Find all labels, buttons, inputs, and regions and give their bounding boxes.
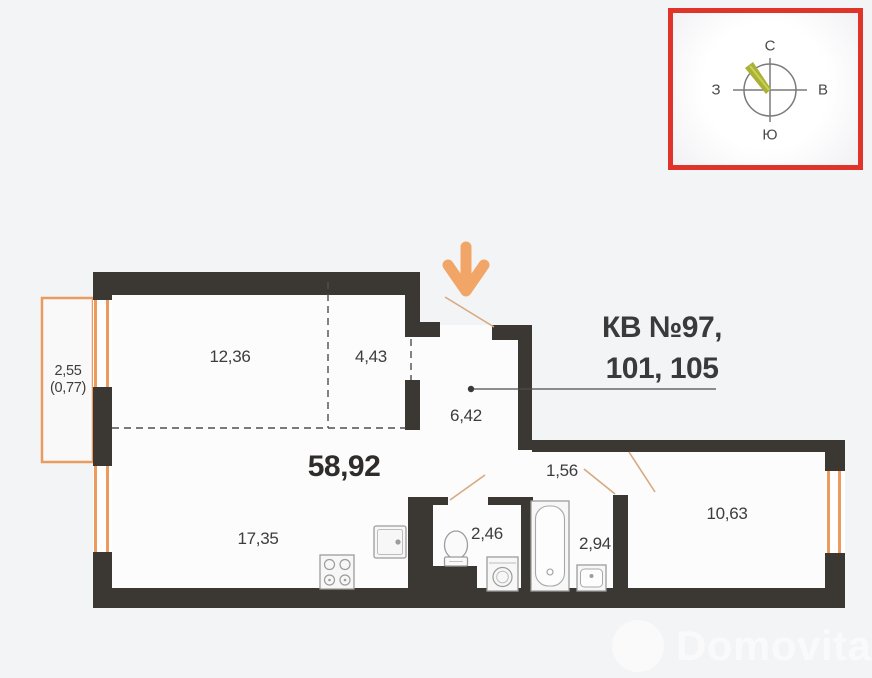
bathtub-icon xyxy=(531,501,569,591)
compass-east-label: В xyxy=(818,82,828,99)
washbasin-icon xyxy=(577,565,606,591)
area-label-bathroom: 2,94 xyxy=(579,534,611,554)
compass-rose: С Ю З В xyxy=(668,8,863,170)
area-label-bedroom: 10,63 xyxy=(706,504,747,524)
watermark-text: Domovita xyxy=(676,622,871,670)
apartment-title-line2: 101, 105 xyxy=(602,348,722,389)
balcony-coef-value: (0,77) xyxy=(50,380,86,397)
area-label-balcony: 2,55 (0,77) xyxy=(50,363,86,397)
window-left-lower xyxy=(93,466,112,552)
area-label-corridor: 1,56 xyxy=(546,461,578,481)
entrance-door-swing xyxy=(445,297,494,327)
watermark-logo-circle xyxy=(612,620,664,672)
total-area-label: 58,92 xyxy=(308,450,381,484)
apartment-title-line1: КВ №97, xyxy=(602,307,722,348)
floor-plan-image: 12,36 4,43 2,55 (0,77) 6,42 58,92 17,35 … xyxy=(0,0,872,678)
washing-machine-icon xyxy=(487,557,518,591)
entrance-arrow-icon xyxy=(448,247,484,291)
toilet-icon xyxy=(445,531,468,566)
kitchen-sink-icon xyxy=(374,526,406,558)
balcony-area-value: 2,55 xyxy=(50,363,86,380)
area-label-alcove-zone: 4,43 xyxy=(355,347,387,367)
apartment-title: КВ №97, 101, 105 xyxy=(602,307,722,389)
compass-north-label: С xyxy=(765,38,776,55)
area-label-kitchen-living: 17,35 xyxy=(237,529,278,549)
window-right xyxy=(825,471,845,553)
compass-west-label: З xyxy=(711,82,720,99)
watermark: Domovita xyxy=(612,620,871,672)
area-label-wc: 2,46 xyxy=(471,524,503,544)
window-left-upper xyxy=(93,300,112,387)
area-label-bedroom-zone: 12,36 xyxy=(209,347,250,367)
area-label-hallway: 6,42 xyxy=(450,406,482,426)
compass-south-label: Ю xyxy=(762,127,777,144)
stove-icon xyxy=(320,555,354,589)
